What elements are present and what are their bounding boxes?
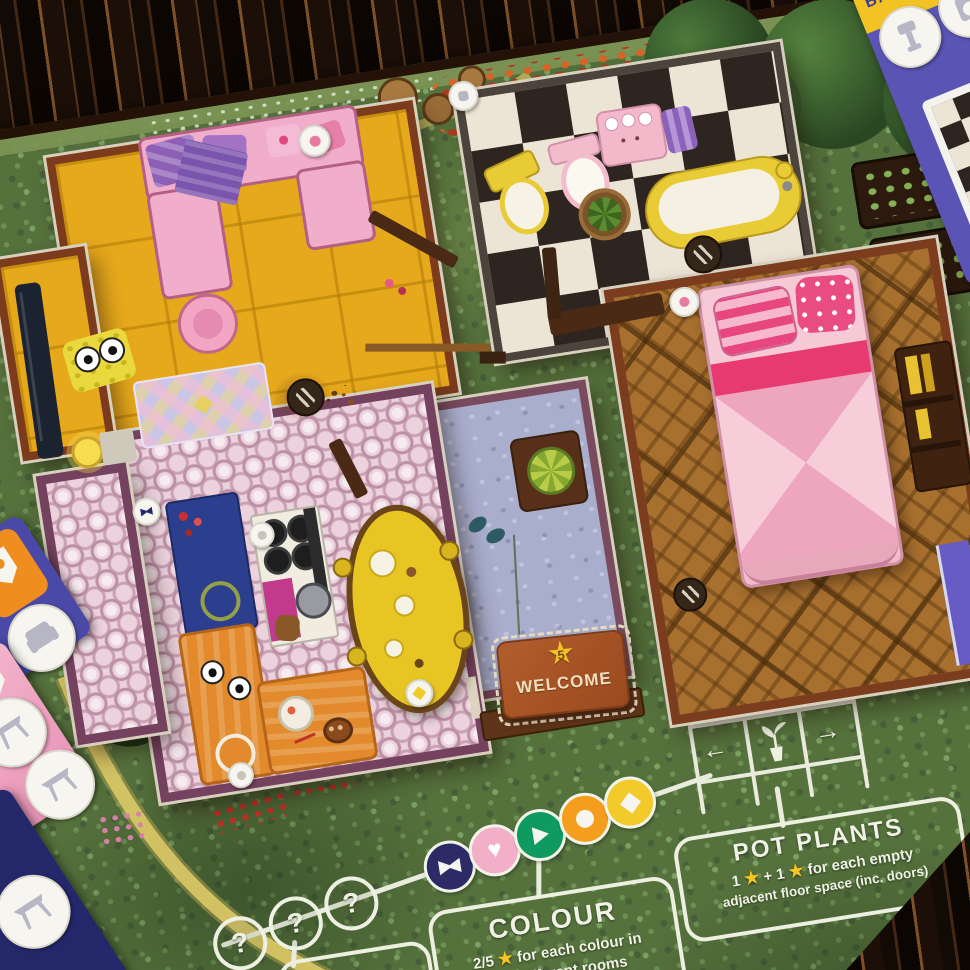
triangle-icon <box>529 824 552 847</box>
heart-icon: ♥ <box>0 666 3 699</box>
star-icon: ★ <box>743 867 761 888</box>
heart-icon: ♥ <box>486 835 504 865</box>
plate <box>392 593 417 618</box>
pot-plant-icon <box>754 718 796 767</box>
diamond-icon <box>620 792 641 813</box>
gray-tile <box>99 429 138 466</box>
orange-counter-horizontal <box>256 665 379 775</box>
circle-icon <box>575 809 596 830</box>
pennant-dot-icon <box>0 546 23 590</box>
cooking-pot <box>293 580 334 621</box>
side-table <box>509 429 590 513</box>
cutting-board <box>275 614 300 641</box>
plate <box>383 637 406 660</box>
mystery-panel-partial-title: ET <box>284 965 432 970</box>
plate <box>275 693 316 734</box>
sink-cabinet <box>595 102 669 168</box>
broom-head <box>480 352 506 364</box>
green-ball <box>524 443 579 498</box>
arrow-right-icon: → <box>812 714 843 749</box>
polka-pillow <box>795 274 857 334</box>
star-icon: ★ <box>496 948 514 969</box>
star-icon: ★ <box>787 860 805 881</box>
plate <box>198 578 244 624</box>
broom-handle <box>365 344 490 352</box>
sofa-right-arm <box>295 159 377 251</box>
arrow-left-icon: ← <box>699 732 730 767</box>
pretzel <box>321 715 355 745</box>
welcome-mat: ★ 5 WELCOME <box>495 629 630 720</box>
bowtie-icon <box>438 856 463 877</box>
board-game-photo: ? ? ? ♥ ← → <box>0 0 970 970</box>
game-board: ? ? ? ♥ ← → <box>0 0 970 970</box>
plate <box>367 547 399 579</box>
